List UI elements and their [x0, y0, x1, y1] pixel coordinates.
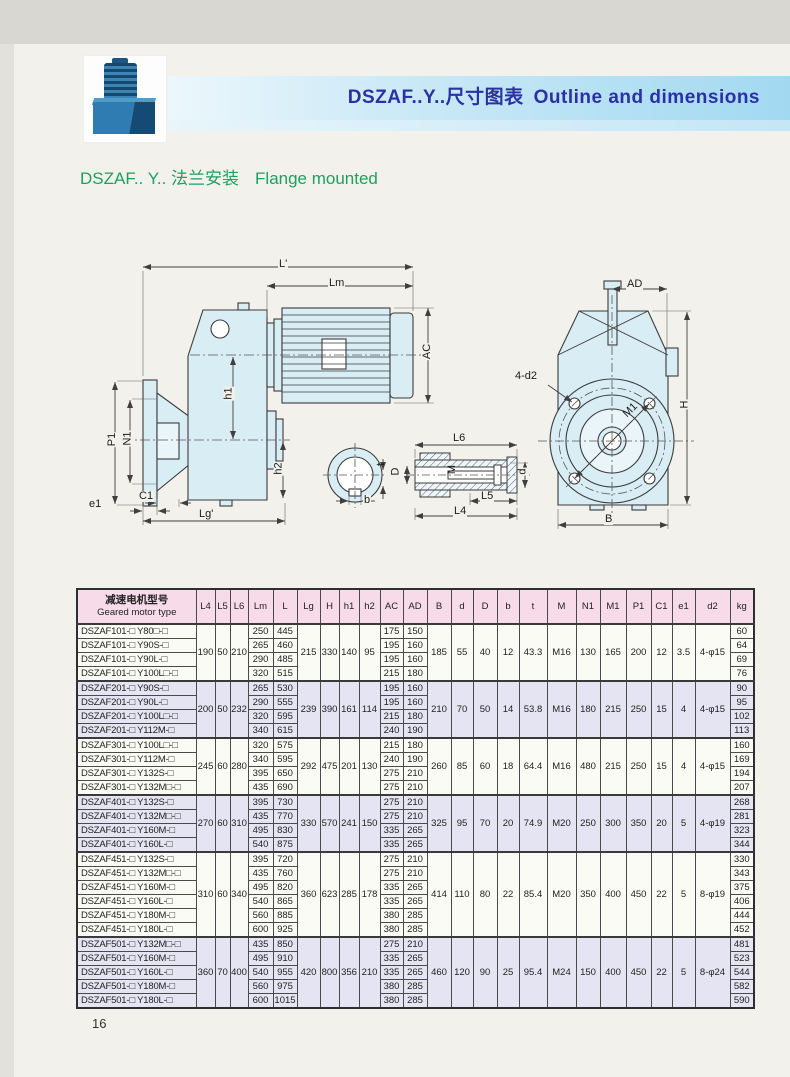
cell-Lm: 435 — [248, 810, 273, 824]
cell-e1: 5 — [672, 937, 695, 1008]
cell-AD: 285 — [403, 994, 427, 1009]
cell-kg: 523 — [730, 952, 754, 966]
model-cell: DSZAF451-□ Y160M-□ — [77, 881, 196, 895]
header-band: DSZAF..Y..尺寸图表Outline and dimensions — [168, 76, 790, 120]
technical-drawing-svg — [70, 253, 760, 553]
cell-L5: 60 — [215, 852, 230, 937]
cell-e1: 3.5 — [672, 624, 695, 681]
cell-AC: 215 — [380, 667, 403, 682]
cell-AD: 210 — [403, 852, 427, 867]
cell-L: 485 — [273, 653, 297, 667]
cell-M1: 400 — [600, 852, 626, 937]
model-cell: DSZAF401-□ Y132M□-□ — [77, 810, 196, 824]
cell-L6: 310 — [230, 795, 248, 852]
cell-d2: 4-φ15 — [695, 624, 730, 681]
cell-N1: 180 — [576, 681, 600, 738]
cell-Lm: 560 — [248, 980, 273, 994]
model-cell: DSZAF201-□ Y90L-□ — [77, 696, 196, 710]
cell-H: 390 — [320, 681, 339, 738]
col-header-L5: L5 — [215, 589, 230, 624]
product-photo — [84, 56, 166, 142]
cell-M: M16 — [547, 738, 576, 795]
dim-label-D: D — [390, 467, 401, 477]
col-header-Lg: Lg — [297, 589, 320, 624]
cell-b: 12 — [497, 624, 519, 681]
cell-Lm: 540 — [248, 966, 273, 980]
model-cell: DSZAF301-□ Y112M-□ — [77, 753, 196, 767]
cell-t: 85.4 — [519, 852, 547, 937]
cell-H: 623 — [320, 852, 339, 937]
cell-C1: 15 — [651, 738, 672, 795]
cell-Lg: 420 — [297, 937, 320, 1008]
cell-b: 14 — [497, 681, 519, 738]
model-cell: DSZAF101-□ Y90L-□ — [77, 653, 196, 667]
col-header-M1: M1 — [600, 589, 626, 624]
cell-L4: 360 — [196, 937, 215, 1008]
cell-N1: 150 — [576, 937, 600, 1008]
cell-L5: 50 — [215, 624, 230, 681]
cell-e1: 5 — [672, 852, 695, 937]
cell-H: 570 — [320, 795, 339, 852]
cell-AC: 275 — [380, 767, 403, 781]
model-cell: DSZAF401-□ Y132S-□ — [77, 795, 196, 810]
cell-M1: 165 — [600, 624, 626, 681]
cell-AC: 335 — [380, 966, 403, 980]
cell-L6: 232 — [230, 681, 248, 738]
table-row: DSZAF401-□ Y132S-□2706031039573033057024… — [77, 795, 754, 810]
cell-N1: 350 — [576, 852, 600, 937]
cell-L: 445 — [273, 624, 297, 639]
cell-AC: 195 — [380, 696, 403, 710]
cell-kg: 95 — [730, 696, 754, 710]
cell-h1: 201 — [339, 738, 359, 795]
cell-N1: 130 — [576, 624, 600, 681]
cell-L6: 280 — [230, 738, 248, 795]
model-cell: DSZAF101-□ Y90S-□ — [77, 639, 196, 653]
cell-h2: 114 — [359, 681, 380, 738]
cell-L: 1015 — [273, 994, 297, 1009]
model-column-header: 减速电机型号 Geared motor type — [77, 589, 196, 624]
scan-top-margin — [0, 0, 790, 44]
dim-label-4d2: 4-d2 — [514, 371, 538, 382]
cell-Lm: 265 — [248, 639, 273, 653]
col-header-L6: L6 — [230, 589, 248, 624]
cell-AC: 275 — [380, 937, 403, 952]
cell-Lm: 600 — [248, 994, 273, 1009]
cell-L: 925 — [273, 923, 297, 938]
cell-kg: 590 — [730, 994, 754, 1009]
col-header-AD: AD — [403, 589, 427, 624]
cell-Lm: 495 — [248, 952, 273, 966]
cell-kg: 102 — [730, 710, 754, 724]
col-header-L: L — [273, 589, 297, 624]
subtitle-zh: DSZAF.. Y.. 法兰安装 — [80, 169, 239, 188]
cell-Lm: 495 — [248, 824, 273, 838]
cell-C1: 20 — [651, 795, 672, 852]
cell-Lm: 320 — [248, 738, 273, 753]
cell-M: M20 — [547, 852, 576, 937]
cell-Lm: 540 — [248, 895, 273, 909]
table-header-row: 减速电机型号 Geared motor type L4L5L6LmLLgHh1h… — [77, 589, 754, 624]
cell-d2: 4-φ15 — [695, 681, 730, 738]
model-cell: DSZAF101-□ Y100L□-□ — [77, 667, 196, 682]
col-header-N1: N1 — [576, 589, 600, 624]
cell-kg: 76 — [730, 667, 754, 682]
cell-L5: 70 — [215, 937, 230, 1008]
col-header-h2: h2 — [359, 589, 380, 624]
cell-N1: 250 — [576, 795, 600, 852]
gearbox-body-shape — [93, 102, 155, 134]
cell-kg: 375 — [730, 881, 754, 895]
catalog-page: { "header": { "title_zh": "DSZAF..Y..尺寸图… — [0, 0, 790, 1077]
dim-label-B: B — [604, 514, 613, 525]
cell-Lg: 360 — [297, 852, 320, 937]
cell-AD: 190 — [403, 724, 427, 739]
col-header-d2: d2 — [695, 589, 730, 624]
cell-h2: 150 — [359, 795, 380, 852]
model-cell: DSZAF451-□ Y180L-□ — [77, 923, 196, 938]
cell-AD: 180 — [403, 710, 427, 724]
cell-L4: 270 — [196, 795, 215, 852]
cell-AD: 210 — [403, 937, 427, 952]
section-subtitle: DSZAF.. Y.. 法兰安装Flange mounted — [80, 164, 378, 189]
cell-L5: 60 — [215, 738, 230, 795]
cell-D: 70 — [473, 795, 497, 852]
cell-L: 515 — [273, 667, 297, 682]
cell-C1: 12 — [651, 624, 672, 681]
group-DSZAF301: DSZAF301-□ Y100L□-□245602803205752924752… — [77, 738, 754, 795]
cell-L: 615 — [273, 724, 297, 739]
cell-B: 460 — [427, 937, 451, 1008]
col-header-t: t — [519, 589, 547, 624]
cell-AD: 160 — [403, 639, 427, 653]
cell-Lm: 435 — [248, 867, 273, 881]
cell-AD: 190 — [403, 753, 427, 767]
cell-L: 595 — [273, 710, 297, 724]
cell-L: 730 — [273, 795, 297, 810]
cell-H: 800 — [320, 937, 339, 1008]
cell-M1: 215 — [600, 738, 626, 795]
cell-AC: 240 — [380, 724, 403, 739]
cell-kg: 406 — [730, 895, 754, 909]
dimensions-table: 减速电机型号 Geared motor type L4L5L6LmLLgHh1h… — [76, 588, 755, 1009]
page-number: 16 — [92, 1016, 106, 1031]
group-DSZAF401: DSZAF401-□ Y132S-□2706031039573033057024… — [77, 795, 754, 852]
cell-L5: 50 — [215, 681, 230, 738]
cell-AC: 195 — [380, 639, 403, 653]
cell-kg: 207 — [730, 781, 754, 796]
cell-AD: 150 — [403, 624, 427, 639]
cell-h1: 285 — [339, 852, 359, 937]
dim-label-L: L' — [278, 259, 288, 270]
cell-Lm: 250 — [248, 624, 273, 639]
model-cell: DSZAF201-□ Y90S-□ — [77, 681, 196, 696]
cell-Lm: 290 — [248, 653, 273, 667]
cell-L6: 400 — [230, 937, 248, 1008]
subtitle-en: Flange mounted — [255, 169, 378, 188]
cell-AC: 215 — [380, 710, 403, 724]
cell-d2: 8-φ24 — [695, 937, 730, 1008]
cell-L5: 60 — [215, 795, 230, 852]
cell-AD: 285 — [403, 980, 427, 994]
model-cell: DSZAF451-□ Y132M□-□ — [77, 867, 196, 881]
cell-Lm: 600 — [248, 923, 273, 938]
group-DSZAF201: DSZAF201-□ Y90S-□20050232265530239390161… — [77, 681, 754, 738]
cell-AD: 265 — [403, 824, 427, 838]
cell-L4: 200 — [196, 681, 215, 738]
cell-Lm: 560 — [248, 909, 273, 923]
cell-M: M20 — [547, 795, 576, 852]
model-cell: DSZAF401-□ Y160M-□ — [77, 824, 196, 838]
dim-label-AC: AC — [422, 343, 433, 360]
cell-kg: 60 — [730, 624, 754, 639]
cell-Lm: 340 — [248, 724, 273, 739]
cell-Lm: 435 — [248, 781, 273, 796]
cell-B: 260 — [427, 738, 451, 795]
group-DSZAF101: DSZAF101-□ Y80□-□19050210250445215330140… — [77, 624, 754, 681]
cell-M: M16 — [547, 624, 576, 681]
dim-label-C1: C1 — [138, 491, 154, 502]
cell-L: 760 — [273, 867, 297, 881]
cell-AC: 240 — [380, 753, 403, 767]
cell-M1: 400 — [600, 937, 626, 1008]
cell-B: 210 — [427, 681, 451, 738]
cell-L: 955 — [273, 966, 297, 980]
cell-kg: 452 — [730, 923, 754, 938]
cell-kg: 481 — [730, 937, 754, 952]
model-header-zh: 减速电机型号 — [78, 594, 196, 607]
cell-C1: 22 — [651, 937, 672, 1008]
cell-b: 18 — [497, 738, 519, 795]
cell-t: 53.8 — [519, 681, 547, 738]
cell-Lg: 239 — [297, 681, 320, 738]
cell-b: 25 — [497, 937, 519, 1008]
cell-L: 865 — [273, 895, 297, 909]
dim-label-M: M — [447, 464, 458, 475]
cell-P1: 250 — [626, 681, 651, 738]
cell-L: 720 — [273, 852, 297, 867]
cell-L: 575 — [273, 738, 297, 753]
table-row: DSZAF301-□ Y100L□-□245602803205752924752… — [77, 738, 754, 753]
cell-H: 475 — [320, 738, 339, 795]
cell-Lm: 395 — [248, 852, 273, 867]
cell-H: 330 — [320, 624, 339, 681]
header-band-substrip — [168, 120, 790, 131]
cell-kg: 169 — [730, 753, 754, 767]
cell-h1: 241 — [339, 795, 359, 852]
cell-AC: 380 — [380, 980, 403, 994]
cell-L: 820 — [273, 881, 297, 895]
model-cell: DSZAF401-□ Y160L-□ — [77, 838, 196, 853]
cell-P1: 450 — [626, 852, 651, 937]
cell-Lm: 495 — [248, 881, 273, 895]
cell-Lg: 292 — [297, 738, 320, 795]
col-header-B: B — [427, 589, 451, 624]
cell-AD: 160 — [403, 653, 427, 667]
cell-P1: 200 — [626, 624, 651, 681]
model-cell: DSZAF501-□ Y132M□-□ — [77, 937, 196, 952]
cell-AC: 175 — [380, 624, 403, 639]
cell-kg: 323 — [730, 824, 754, 838]
cell-d2: 8-φ19 — [695, 852, 730, 937]
table-header: 减速电机型号 Geared motor type L4L5L6LmLLgHh1h… — [77, 589, 754, 624]
dim-label-d: d — [518, 467, 529, 475]
dim-label-L5: L5 — [480, 491, 494, 502]
model-cell: DSZAF451-□ Y132S-□ — [77, 852, 196, 867]
dim-label-L4: L4 — [453, 506, 467, 517]
cell-d2: 4-φ15 — [695, 738, 730, 795]
cell-t: 95.4 — [519, 937, 547, 1008]
cell-d: 70 — [451, 681, 473, 738]
cell-h1: 356 — [339, 937, 359, 1008]
cell-d: 110 — [451, 852, 473, 937]
cell-AC: 380 — [380, 909, 403, 923]
scan-left-margin — [0, 44, 14, 1077]
cell-M1: 215 — [600, 681, 626, 738]
cell-L: 910 — [273, 952, 297, 966]
cell-L: 690 — [273, 781, 297, 796]
cell-b: 20 — [497, 795, 519, 852]
col-header-e1: e1 — [672, 589, 695, 624]
cell-Lm: 395 — [248, 767, 273, 781]
cell-L6: 210 — [230, 624, 248, 681]
table-row: DSZAF501-□ Y132M□-□360704004358504208003… — [77, 937, 754, 952]
cell-AD: 210 — [403, 781, 427, 796]
cell-AC: 195 — [380, 653, 403, 667]
group-DSZAF451: DSZAF451-□ Y132S-□3106034039572036062328… — [77, 852, 754, 937]
cell-kg: 444 — [730, 909, 754, 923]
col-header-P1: P1 — [626, 589, 651, 624]
dim-label-H: H — [679, 400, 690, 410]
model-cell: DSZAF451-□ Y180M-□ — [77, 909, 196, 923]
cell-L: 460 — [273, 639, 297, 653]
cell-D: 60 — [473, 738, 497, 795]
dim-label-Lg: Lg' — [198, 509, 214, 520]
cell-d: 85 — [451, 738, 473, 795]
cell-b: 22 — [497, 852, 519, 937]
cell-AC: 335 — [380, 952, 403, 966]
col-header-Lm: Lm — [248, 589, 273, 624]
dim-label-h1: h1 — [224, 386, 235, 400]
page-title: DSZAF..Y..尺寸图表Outline and dimensions — [168, 76, 790, 120]
cell-AC: 275 — [380, 795, 403, 810]
cell-C1: 22 — [651, 852, 672, 937]
cell-L: 530 — [273, 681, 297, 696]
cell-Lm: 395 — [248, 795, 273, 810]
cell-L4: 310 — [196, 852, 215, 937]
col-header-H: H — [320, 589, 339, 624]
col-header-C1: C1 — [651, 589, 672, 624]
cell-L6: 340 — [230, 852, 248, 937]
model-cell: DSZAF301-□ Y132M□-□ — [77, 781, 196, 796]
model-cell: DSZAF301-□ Y132S-□ — [77, 767, 196, 781]
cell-kg: 160 — [730, 738, 754, 753]
cell-Lm: 435 — [248, 937, 273, 952]
cell-AD: 160 — [403, 696, 427, 710]
cell-d: 95 — [451, 795, 473, 852]
cell-kg: 113 — [730, 724, 754, 739]
cell-AC: 335 — [380, 824, 403, 838]
cell-t: 43.3 — [519, 624, 547, 681]
dim-label-L6: L6 — [452, 433, 466, 444]
cell-h1: 161 — [339, 681, 359, 738]
model-cell: DSZAF201-□ Y112M-□ — [77, 724, 196, 739]
cell-kg: 268 — [730, 795, 754, 810]
cell-d: 55 — [451, 624, 473, 681]
dim-label-AD: AD — [626, 279, 643, 290]
cell-Lm: 265 — [248, 681, 273, 696]
cell-e1: 4 — [672, 681, 695, 738]
model-cell: DSZAF501-□ Y180L-□ — [77, 994, 196, 1009]
cell-D: 80 — [473, 852, 497, 937]
dim-label-h2: h2 — [274, 461, 285, 475]
cell-AC: 335 — [380, 895, 403, 909]
cell-h2: 95 — [359, 624, 380, 681]
cell-L4: 245 — [196, 738, 215, 795]
cell-L: 595 — [273, 753, 297, 767]
cell-AD: 210 — [403, 767, 427, 781]
model-cell: DSZAF301-□ Y100L□-□ — [77, 738, 196, 753]
cell-AC: 275 — [380, 852, 403, 867]
cell-kg: 281 — [730, 810, 754, 824]
cell-e1: 5 — [672, 795, 695, 852]
cell-kg: 582 — [730, 980, 754, 994]
cell-kg: 64 — [730, 639, 754, 653]
model-header-en: Geared motor type — [78, 607, 196, 619]
model-cell: DSZAF501-□ Y160L-□ — [77, 966, 196, 980]
cell-e1: 4 — [672, 738, 695, 795]
col-header-h1: h1 — [339, 589, 359, 624]
cell-D: 50 — [473, 681, 497, 738]
cell-B: 325 — [427, 795, 451, 852]
cell-P1: 250 — [626, 738, 651, 795]
cell-P1: 450 — [626, 937, 651, 1008]
col-header-L4: L4 — [196, 589, 215, 624]
cell-kg: 90 — [730, 681, 754, 696]
cell-AC: 380 — [380, 923, 403, 938]
model-cell: DSZAF501-□ Y160M-□ — [77, 952, 196, 966]
cell-L: 770 — [273, 810, 297, 824]
cell-h1: 140 — [339, 624, 359, 681]
cell-kg: 343 — [730, 867, 754, 881]
cell-Lg: 215 — [297, 624, 320, 681]
cell-Lg: 330 — [297, 795, 320, 852]
cell-Lm: 290 — [248, 696, 273, 710]
col-header-M: M — [547, 589, 576, 624]
cell-C1: 15 — [651, 681, 672, 738]
cell-D: 40 — [473, 624, 497, 681]
cell-B: 185 — [427, 624, 451, 681]
cell-AC: 335 — [380, 881, 403, 895]
cell-AD: 285 — [403, 909, 427, 923]
cell-AD: 265 — [403, 966, 427, 980]
cell-L: 885 — [273, 909, 297, 923]
dim-label-P1: P1 — [107, 432, 118, 447]
cell-AD: 180 — [403, 667, 427, 682]
cell-M: M16 — [547, 681, 576, 738]
cell-AC: 195 — [380, 681, 403, 696]
col-header-b: b — [497, 589, 519, 624]
page-title-en: Outline and dimensions — [534, 87, 760, 108]
cell-kg: 330 — [730, 852, 754, 867]
cell-kg: 544 — [730, 966, 754, 980]
cell-AD: 160 — [403, 681, 427, 696]
table-row: DSZAF201-□ Y90S-□20050232265530239390161… — [77, 681, 754, 696]
col-header-AC: AC — [380, 589, 403, 624]
cell-L: 650 — [273, 767, 297, 781]
cell-AD: 285 — [403, 923, 427, 938]
technical-drawing: L'LmACh1h2P1N1e1C1Lg'btL6DMdL5L4ADHB4-d2… — [70, 253, 760, 553]
